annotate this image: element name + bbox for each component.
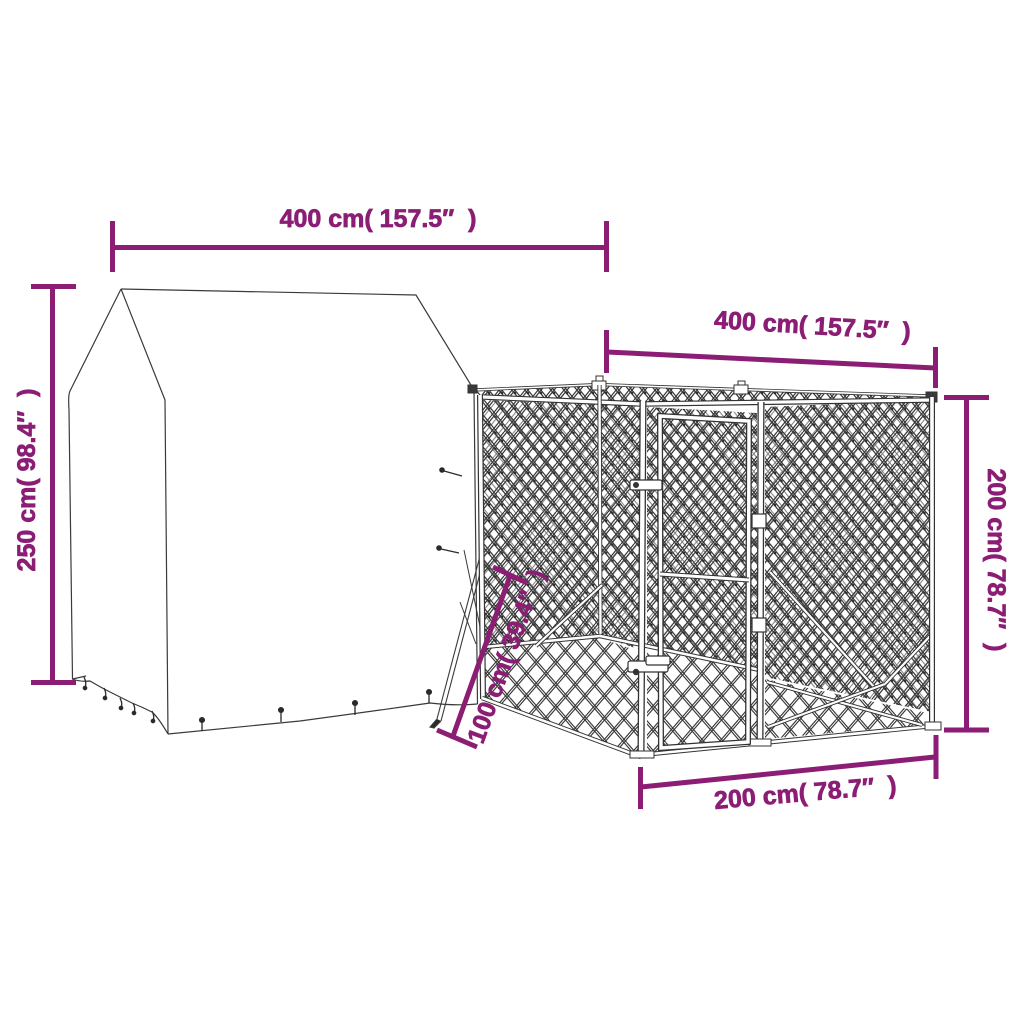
svg-text:400 cm( 157.5″ ): 400 cm( 157.5″ ) [280, 205, 477, 233]
svg-text:200 cm( 78.7″ ): 200 cm( 78.7″ ) [982, 469, 1010, 652]
svg-text:250 cm( 98.4″ ): 250 cm( 98.4″ ) [13, 389, 41, 572]
